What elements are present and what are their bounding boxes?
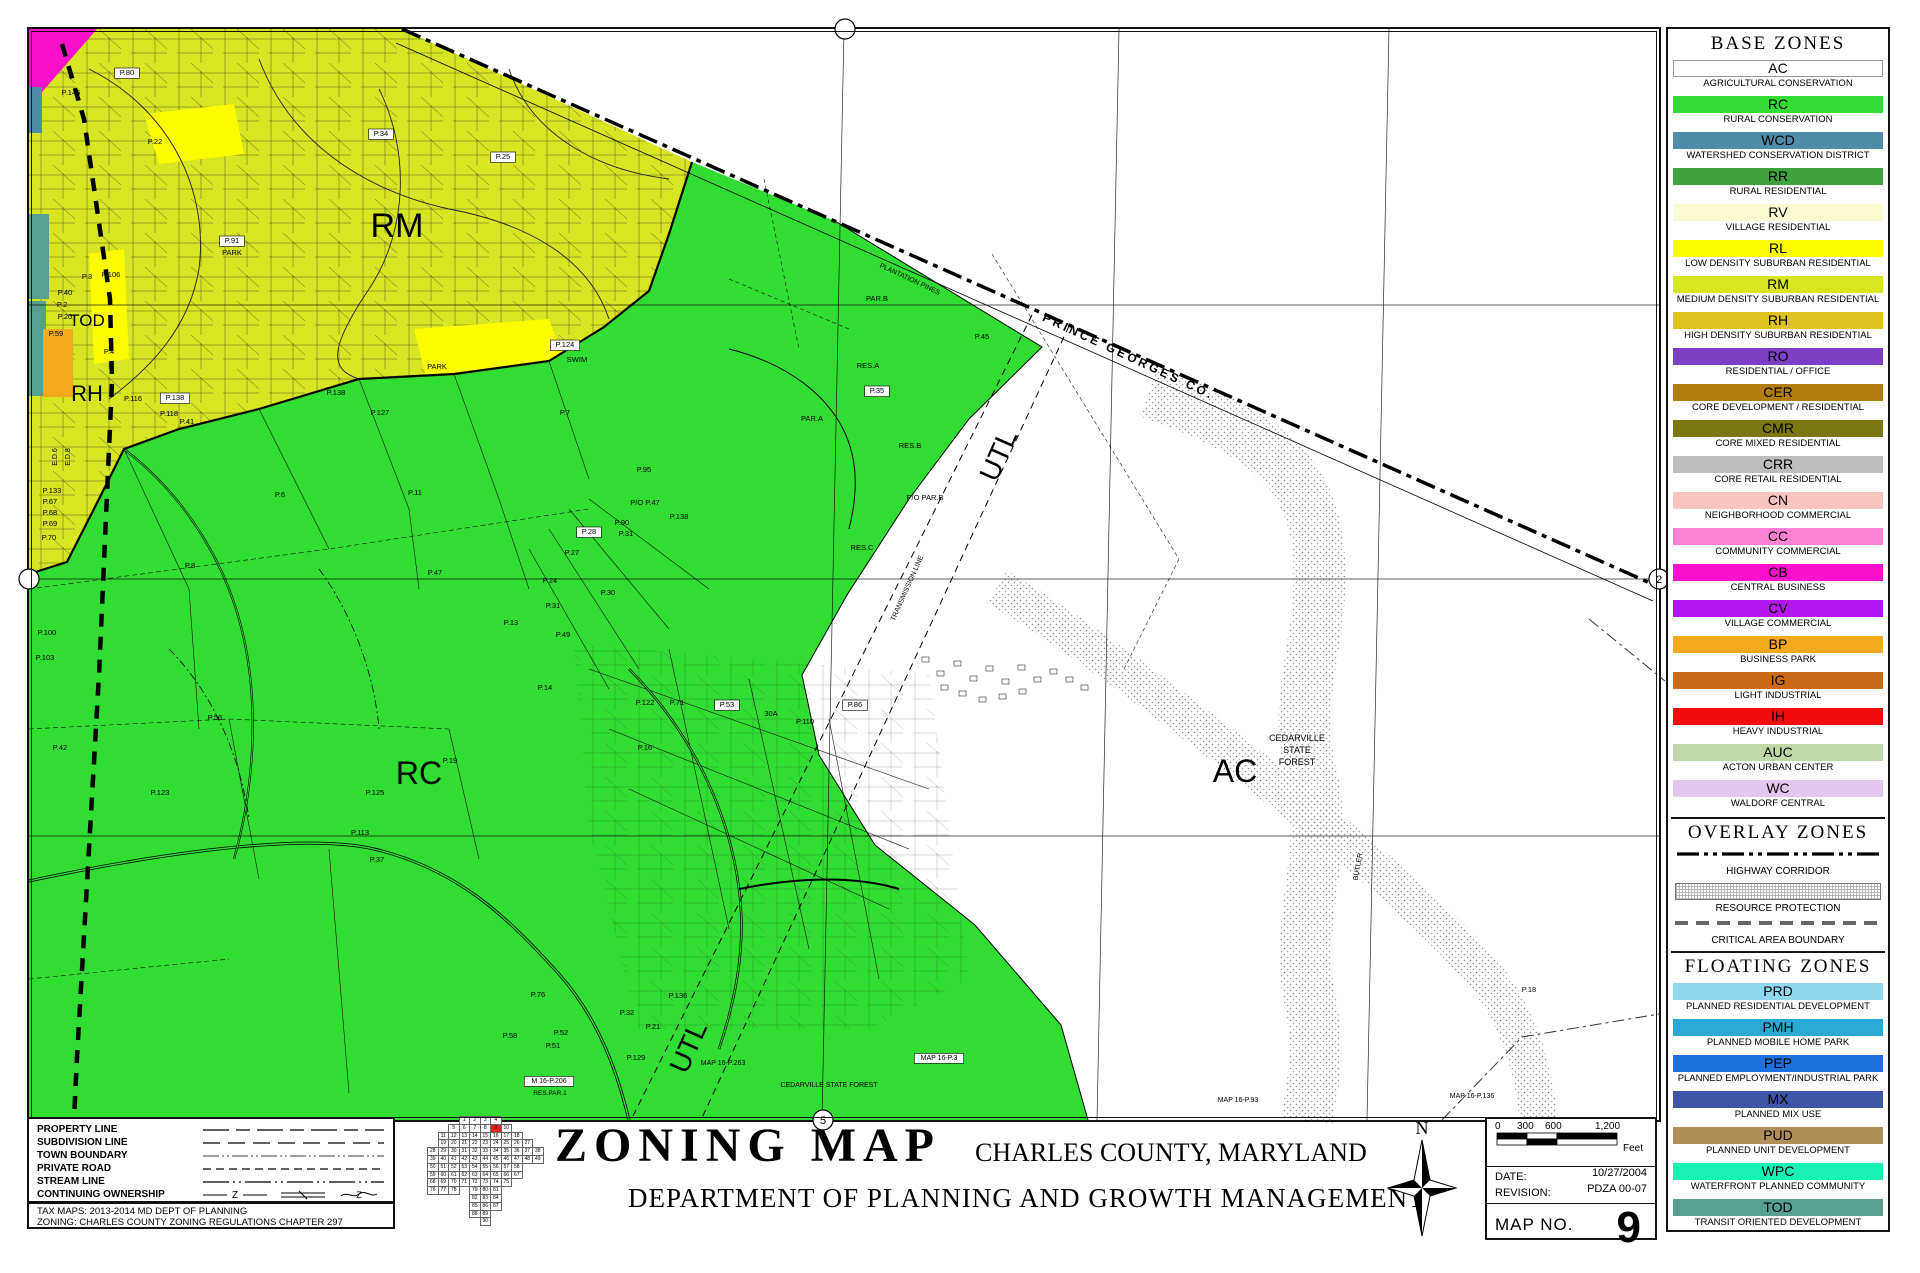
zone-color-bar: WPC	[1673, 1163, 1883, 1180]
source-notes: TAX MAPS: 2013-2014 MD DEPT OF PLANNING …	[27, 1202, 395, 1229]
line-legend-row: PRIVATE ROAD	[37, 1162, 385, 1175]
map-label: P.103	[36, 653, 55, 662]
legend-sidebar: BASE ZONES ACAGRICULTURAL CONSERVATIONRC…	[1666, 27, 1890, 1232]
map-label: P.6	[275, 490, 285, 499]
map-label: CEDARVILLE	[1269, 733, 1325, 743]
base-zones-list: ACAGRICULTURAL CONSERVATIONRCRURAL CONSE…	[1671, 58, 1885, 814]
zone-legend-entry: ACAGRICULTURAL CONSERVATION	[1671, 58, 1885, 94]
index-grid-cell: 78	[448, 1186, 460, 1195]
map-label: P.58	[503, 1031, 517, 1040]
line-legend-row: STREAM LINE	[37, 1175, 385, 1188]
map-label: P.124	[556, 340, 575, 349]
map-label: P.47	[428, 568, 442, 577]
zone-legend-entry: MXPLANNED MIX USE	[1671, 1089, 1885, 1125]
map-label: P.34	[374, 129, 388, 138]
map-label: P.2	[57, 300, 67, 309]
map-label: P.67	[43, 497, 57, 506]
map-label: P.91	[225, 236, 239, 245]
zone-legend-entry: WCDWATERSHED CONSERVATION DISTRICT	[1671, 130, 1885, 166]
map-label: FOREST	[1279, 757, 1316, 767]
zone-label: CORE RETAIL RESIDENTIAL	[1671, 473, 1885, 486]
zone-legend-entry: PUDPLANNED UNIT DEVELOPMENT	[1671, 1125, 1885, 1161]
map-label: SWIM	[567, 355, 587, 364]
zone-legend-entry: CERCORE DEVELOPMENT / RESIDENTIAL	[1671, 382, 1885, 418]
zone-color-bar: PMH	[1673, 1019, 1883, 1036]
map-label: P.69	[43, 519, 57, 528]
map-label: P.18	[1522, 985, 1536, 994]
zone-color-bar: RC	[1673, 96, 1883, 113]
line-legend-row: CONTINUING OWNERSHIPZZ	[37, 1188, 385, 1201]
zone-color-bar: RL	[1673, 240, 1883, 257]
map-label: P.59	[49, 329, 63, 338]
map-label: MAP 16-P.3	[921, 1055, 958, 1062]
map-label: PARK	[427, 362, 447, 371]
separator	[1671, 817, 1885, 819]
zone-color-bar: WCD	[1673, 132, 1883, 149]
zone-legend-entry: RCRURAL CONSERVATION	[1671, 94, 1885, 130]
zone-label: PLANNED EMPLOYMENT/INDUSTRIAL PARK	[1671, 1072, 1885, 1085]
critical-area-sample	[1671, 917, 1887, 929]
compass-star	[1388, 1140, 1456, 1236]
compass-north-label: N	[1416, 1118, 1429, 1138]
zone-color-bar: TOD	[1673, 1199, 1883, 1216]
map-label: P.129	[627, 1053, 646, 1062]
zone-rl-patch	[144, 104, 244, 164]
zone-color-bar: CB	[1673, 564, 1883, 581]
zone-label: LIGHT INDUSTRIAL	[1671, 689, 1885, 702]
line-type-legend: PROPERTY LINESUBDIVISION LINETOWN BOUNDA…	[27, 1117, 395, 1203]
zone-legend-entry: WPCWATERFRONT PLANNED COMMUNITY	[1671, 1161, 1885, 1197]
stream-corridor	[997, 587, 1539, 1120]
zone-label: PLANNED UNIT DEVELOPMENT	[1671, 1144, 1885, 1157]
grid-marker-circle	[835, 19, 855, 39]
zone-label: PLANNED MIX USE	[1671, 1108, 1885, 1121]
zone-color-bar: PRD	[1673, 983, 1883, 1000]
scale-tick: 600	[1545, 1121, 1562, 1132]
map-label: P.76	[531, 990, 545, 999]
zone-legend-entry: PMHPLANNED MOBILE HOME PARK	[1671, 1017, 1885, 1053]
map-label: TOD	[69, 311, 105, 330]
index-grid-cell: 49	[532, 1155, 544, 1164]
zone-legend-entry: TODTRANSIT ORIENTED DEVELOPMENT	[1671, 1197, 1885, 1233]
zone-label: ACTON URBAN CENTER	[1671, 761, 1885, 774]
zone-color-bar: RV	[1673, 204, 1883, 221]
map-label: P.3	[82, 272, 92, 281]
map-label: P.145	[62, 88, 81, 97]
map-label: P.86	[848, 700, 862, 709]
line-sample-continuing: ZZ	[201, 1189, 385, 1201]
map-label: P.8	[185, 561, 195, 570]
zone-label: PLANNED MOBILE HOME PARK	[1671, 1036, 1885, 1049]
zone-label: RESIDENTIAL / OFFICE	[1671, 365, 1885, 378]
zoning-map-canvas: 52 RMRCACTODRHUTLUTLPRINCE GEORGES CO.PL…	[29, 29, 1659, 1120]
zone-legend-entry: WCWALDORF CENTRAL	[1671, 778, 1885, 814]
index-grid-cell: 90	[480, 1217, 492, 1226]
map-label: E.D.6	[52, 448, 59, 466]
zone-legend-entry: RMMEDIUM DENSITY SUBURBAN RESIDENTIAL	[1671, 274, 1885, 310]
zone-label: AGRICULTURAL CONSERVATION	[1671, 77, 1885, 90]
zone-color-bar: CMR	[1673, 420, 1883, 437]
zone-legend-entry: CBCENTRAL BUSINESS	[1671, 562, 1885, 598]
map-label: P.51	[546, 1041, 560, 1050]
zone-legend-entry: RVVILLAGE RESIDENTIAL	[1671, 202, 1885, 238]
map-label: UTL	[973, 425, 1023, 486]
map-label: RM	[371, 207, 424, 245]
map-label: P.133	[43, 486, 62, 495]
department-title: DEPARTMENT OF PLANNING AND GROWTH MANAGE…	[628, 1183, 1426, 1214]
map-label: RC	[396, 755, 442, 791]
line-legend-label: STREAM LINE	[37, 1176, 201, 1187]
map-label: P.42	[53, 743, 67, 752]
svg-text:Z: Z	[232, 1190, 238, 1201]
line-legend-row: TOWN BOUNDARY	[37, 1149, 385, 1162]
date-value: 10/27/2004	[1592, 1167, 1647, 1179]
zone-legend-entry: RORESIDENTIAL / OFFICE	[1671, 346, 1885, 382]
index-grid-cell: 87	[490, 1202, 502, 1211]
map-label: P.90	[615, 518, 629, 527]
map-label: P/O P.47	[630, 498, 659, 507]
scale-bar: 0 300 600 1,200 Feet	[1487, 1119, 1655, 1161]
zone-label: HIGH DENSITY SUBURBAN RESIDENTIAL	[1671, 329, 1885, 342]
map-label: P.123	[151, 788, 170, 797]
zone-label: CORE DEVELOPMENT / RESIDENTIAL	[1671, 401, 1885, 414]
base-zones-header: BASE ZONES	[1671, 31, 1885, 58]
map-label: P.71	[670, 698, 684, 707]
map-label: P.27	[565, 548, 579, 557]
resource-protection-sample	[1675, 883, 1881, 900]
zone-legend-entry: RLLOW DENSITY SUBURBAN RESIDENTIAL	[1671, 238, 1885, 274]
map-label: RES.C	[851, 543, 875, 552]
map-label: P.52	[554, 1028, 568, 1037]
map-label: 30A	[764, 709, 777, 718]
map-label: P.125	[366, 788, 385, 797]
map-label: P.53	[720, 700, 734, 709]
zone-label: CORE MIXED RESIDENTIAL	[1671, 437, 1885, 450]
map-label: P.56	[208, 713, 222, 722]
line-legend-label: SUBDIVISION LINE	[37, 1137, 201, 1148]
scale-tick: 0	[1495, 1121, 1501, 1132]
map-label: P.31	[546, 601, 560, 610]
map-label: CEDARVILLE STATE FOREST	[780, 1082, 878, 1089]
map-label: P.138	[670, 512, 689, 521]
index-grid-cell: 67	[511, 1171, 523, 1180]
highway-corridor-sample	[1671, 847, 1887, 860]
zone-color-bar: RM	[1673, 276, 1883, 293]
map-label: RES.B	[899, 441, 922, 450]
zone-legend-entry: CRRCORE RETAIL RESIDENTIAL	[1671, 454, 1885, 490]
date-label: DATE:	[1495, 1171, 1527, 1183]
index-grid-cell: 75	[501, 1178, 513, 1187]
map-title: ZONING MAP	[555, 1118, 941, 1173]
map-label: P/O PAR.B	[907, 493, 944, 502]
line-sample-private	[201, 1163, 385, 1175]
zone-bp-patch	[43, 329, 73, 397]
zone-legend-entry: IGLIGHT INDUSTRIAL	[1671, 670, 1885, 706]
revision-value: PDZA 00-07	[1587, 1183, 1647, 1195]
zone-legend-entry: CCCOMMUNITY COMMERCIAL	[1671, 526, 1885, 562]
note-zoning: ZONING: CHARLES COUNTY ZONING REGULATION…	[37, 1217, 385, 1228]
zone-label: VILLAGE COMMERCIAL	[1671, 617, 1885, 630]
line-legend-row: SUBDIVISION LINE	[37, 1136, 385, 1149]
map-label: RH	[71, 381, 103, 406]
zone-color-bar: BP	[1673, 636, 1883, 653]
zone-color-bar: CC	[1673, 528, 1883, 545]
line-legend-row: PROPERTY LINE	[37, 1123, 385, 1136]
zone-label: WALDORF CENTRAL	[1671, 797, 1885, 810]
zone-legend-entry: CVVILLAGE COMMERCIAL	[1671, 598, 1885, 634]
map-label: MAP 16-P.263	[701, 1060, 746, 1067]
map-label: P.138	[166, 393, 185, 402]
map-label: P.13	[504, 618, 518, 627]
svg-text:Z: Z	[356, 1190, 362, 1200]
revision-label: REVISION:	[1495, 1187, 1551, 1199]
map-no-value: 9	[1617, 1203, 1641, 1253]
zone-wcd-strip	[29, 87, 42, 133]
zone-color-bar: RH	[1673, 312, 1883, 329]
map-label: P.25	[496, 152, 510, 161]
zone-legend-entry: AUCACTON URBAN CENTER	[1671, 742, 1885, 778]
zone-label: TRANSIT ORIENTED DEVELOPMENT	[1671, 1216, 1885, 1229]
map-label: MAP 16-P.136	[1450, 1093, 1495, 1100]
map-label: P.80	[120, 68, 134, 77]
zone-color-bar: IG	[1673, 672, 1883, 689]
map-label: P.16	[638, 743, 652, 752]
grid-marker-number: 2	[1656, 574, 1662, 586]
zone-color-bar: AUC	[1673, 744, 1883, 761]
map-label: P.95	[637, 465, 651, 474]
zone-color-bar: RO	[1673, 348, 1883, 365]
zone-color-bar: CN	[1673, 492, 1883, 509]
line-legend-label: PROPERTY LINE	[37, 1124, 201, 1135]
scale-unit: Feet	[1623, 1143, 1643, 1154]
compass-rose: N	[1372, 1118, 1472, 1243]
line-sample-stream	[201, 1176, 385, 1188]
zone-legend-entry: BPBUSINESS PARK	[1671, 634, 1885, 670]
zone-label: LOW DENSITY SUBURBAN RESIDENTIAL	[1671, 257, 1885, 270]
map-label: P.22	[148, 137, 162, 146]
zone-color-bar: AC	[1673, 60, 1883, 77]
map-label: RES.PAR.1	[533, 1090, 567, 1097]
separator	[1671, 951, 1885, 953]
map-label: PAR.B	[866, 294, 888, 303]
zone-legend-entry: PEPPLANNED EMPLOYMENT/INDUSTRIAL PARK	[1671, 1053, 1885, 1089]
zone-legend-entry: PRDPLANNED RESIDENTIAL DEVELOPMENT	[1671, 981, 1885, 1017]
zone-label: BUSINESS PARK	[1671, 653, 1885, 666]
zone-label: WATERFRONT PLANNED COMMUNITY	[1671, 1180, 1885, 1193]
rc-dense-subdivision-texture	[574, 644, 969, 1029]
overlay-label: CRITICAL AREA BOUNDARY	[1671, 934, 1885, 948]
scale-tick: 300	[1517, 1121, 1534, 1132]
county-subtitle: CHARLES COUNTY, MARYLAND	[975, 1138, 1367, 1168]
map-label: P.24	[543, 576, 557, 585]
map-label: P.30	[601, 588, 615, 597]
map-label: P.127	[371, 408, 390, 417]
map-label: P.68	[43, 508, 57, 517]
map-label: P.136	[669, 991, 688, 1000]
zone-tod-strip	[29, 214, 49, 299]
zone-color-bar: IH	[1673, 708, 1883, 725]
map-label: M 16-P.206	[531, 1078, 566, 1085]
zone-label: NEIGHBORHOOD COMMERCIAL	[1671, 509, 1885, 522]
zone-label: COMMUNITY COMMERCIAL	[1671, 545, 1885, 558]
zone-color-bar: MX	[1673, 1091, 1883, 1108]
map-label: P.20	[58, 312, 72, 321]
zone-legend-entry: CMRCORE MIXED RESIDENTIAL	[1671, 418, 1885, 454]
zone-label: WATERSHED CONSERVATION DISTRICT	[1671, 149, 1885, 162]
map-label: E.D.8	[65, 448, 72, 466]
map-label: P.21	[646, 1022, 660, 1031]
line-sample-property	[201, 1124, 385, 1136]
map-label: P.118	[160, 409, 178, 418]
zone-legend-entry: RRRURAL RESIDENTIAL	[1671, 166, 1885, 202]
zone-color-bar: PEP	[1673, 1055, 1883, 1072]
zone-color-bar: RR	[1673, 168, 1883, 185]
zone-label: RURAL RESIDENTIAL	[1671, 185, 1885, 198]
map-label: PARK	[222, 248, 242, 257]
map-label: STATE	[1283, 745, 1311, 755]
map-no-label: MAP NO.	[1495, 1215, 1573, 1234]
map-label: P.116	[124, 394, 142, 403]
map-label: P.41	[180, 417, 194, 426]
zone-color-bar: CER	[1673, 384, 1883, 401]
line-sample-town	[201, 1150, 385, 1162]
map-label: P.45	[975, 332, 989, 341]
zone-legend-entry: RHHIGH DENSITY SUBURBAN RESIDENTIAL	[1671, 310, 1885, 346]
map-label: P.122	[636, 698, 655, 707]
map-label: P.113	[351, 828, 369, 837]
map-label: P.4	[104, 347, 114, 356]
building-footprints	[922, 657, 1088, 702]
zone-label: VILLAGE RESIDENTIAL	[1671, 221, 1885, 234]
map-label: P.100	[38, 628, 57, 637]
scale-and-info-box: 0 300 600 1,200 Feet DATE: 10/27/2004 RE…	[1485, 1117, 1657, 1240]
map-label: P.32	[620, 1008, 634, 1017]
map-label: P.35	[870, 386, 884, 395]
map-label: P.11	[408, 488, 422, 497]
map-panel: 52 RMRCACTODRHUTLUTLPRINCE GEORGES CO.PL…	[27, 27, 1661, 1122]
line-sample-subdivision	[201, 1137, 385, 1149]
map-label: AC	[1213, 753, 1257, 789]
map-label: P.40	[58, 288, 72, 297]
map-label: P.7	[560, 408, 570, 417]
scale-tick: 1,200	[1595, 1121, 1620, 1132]
floating-zones-header: FLOATING ZONES	[1671, 954, 1885, 981]
line-legend-label: CONTINUING OWNERSHIP	[37, 1189, 201, 1200]
zone-legend-entry: IHHEAVY INDUSTRIAL	[1671, 706, 1885, 742]
map-label: P.138	[327, 388, 346, 397]
map-label: PAR.A	[801, 414, 823, 423]
zone-legend-entry: CNNEIGHBORHOOD COMMERCIAL	[1671, 490, 1885, 526]
zone-color-bar: CRR	[1673, 456, 1883, 473]
map-label: P.70	[42, 533, 56, 542]
map-label: P.49	[556, 630, 570, 639]
map-label: PRINCE GEORGES CO.	[1041, 310, 1217, 402]
note-taxmaps: TAX MAPS: 2013-2014 MD DEPT OF PLANNING	[37, 1206, 385, 1217]
zone-color-bar: CV	[1673, 600, 1883, 617]
map-label: P.37	[370, 855, 384, 864]
map-label: RES.A	[857, 361, 880, 370]
zone-label: PLANNED RESIDENTIAL DEVELOPMENT	[1671, 1000, 1885, 1013]
map-label: P.110	[796, 717, 814, 726]
floating-zones-list: PRDPLANNED RESIDENTIAL DEVELOPMENTPMHPLA…	[1671, 981, 1885, 1233]
map-label: MAP 16-P.93	[1218, 1097, 1259, 1104]
overlay-label: HIGHWAY CORRIDOR	[1671, 865, 1885, 879]
zone-label: MEDIUM DENSITY SUBURBAN RESIDENTIAL	[1671, 293, 1885, 306]
map-label: P.28	[582, 527, 596, 536]
overlay-label: RESOURCE PROTECTION	[1671, 902, 1885, 916]
line-legend-label: PRIVATE ROAD	[37, 1163, 201, 1174]
map-label: P.19	[443, 756, 457, 765]
zone-color-bar: WC	[1673, 780, 1883, 797]
grid-marker-circle	[19, 569, 39, 589]
line-legend-label: TOWN BOUNDARY	[37, 1150, 201, 1161]
zone-color-bar: PUD	[1673, 1127, 1883, 1144]
zone-label: RURAL CONSERVATION	[1671, 113, 1885, 126]
map-label: P.31	[619, 529, 633, 538]
zone-label: CENTRAL BUSINESS	[1671, 581, 1885, 594]
map-label: P.14	[538, 683, 552, 692]
map-label: P.106	[102, 270, 121, 279]
zone-label: HEAVY INDUSTRIAL	[1671, 725, 1885, 738]
overlay-zones-header: OVERLAY ZONES	[1671, 820, 1885, 847]
